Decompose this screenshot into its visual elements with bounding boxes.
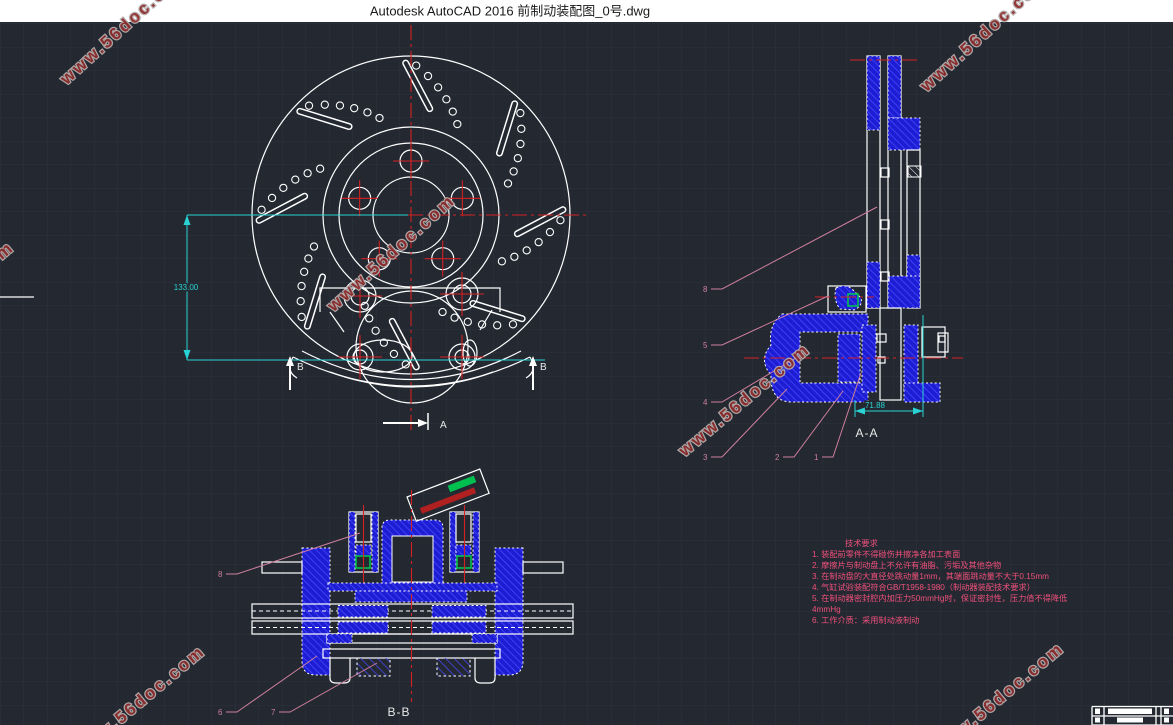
marker-b-right-label: B bbox=[540, 362, 547, 373]
callout-1: 1 bbox=[814, 453, 819, 462]
section-bb-label: B-B bbox=[387, 705, 410, 719]
callout-6: 6 bbox=[218, 708, 223, 717]
tech-note-6: 6. 工作介质：采用制动液制动 bbox=[812, 615, 919, 625]
title-block-table bbox=[1092, 707, 1173, 725]
tech-note-5b: 4mmHg bbox=[812, 605, 841, 614]
tech-note-5: 5. 在制动器密封腔内加压力50mmHg时，保证密封性，压力值不得降低 bbox=[812, 593, 1067, 603]
callout-5: 5 bbox=[703, 341, 708, 350]
dim-71-value: 71.88 bbox=[865, 401, 886, 410]
section-aa-label: A-A bbox=[855, 426, 878, 440]
window-title: Autodesk AutoCAD 2016 前制动装配图_0号.dwg bbox=[370, 4, 650, 19]
tech-notes-title: 技术要求 bbox=[845, 538, 878, 548]
tech-note-1: 1. 装配前零件不得碰伤并擦净各加工表面 bbox=[812, 549, 960, 559]
drawing-canvas[interactable]: 133.00 B B A bbox=[0, 0, 1173, 725]
tech-note-2: 2. 摩擦片与制动盘上不允许有油脂、污垢及其他杂物 bbox=[812, 560, 1001, 570]
callout-4: 4 bbox=[703, 398, 708, 407]
tech-note-4: 4. 气缸试验装配符合GB/T1958-1980（制动器装配技术要求） bbox=[812, 582, 1035, 592]
callout-7: 7 bbox=[271, 708, 276, 717]
callout-8b: 8 bbox=[218, 570, 223, 579]
marker-b-left-label: B bbox=[297, 362, 304, 373]
marker-a-label: A bbox=[440, 420, 447, 431]
dim-133-value: 133.00 bbox=[174, 283, 199, 292]
callout-2: 2 bbox=[775, 453, 780, 462]
callout-8: 8 bbox=[703, 285, 708, 294]
callout-3: 3 bbox=[703, 453, 708, 462]
grid-overlay bbox=[0, 22, 1173, 725]
tech-note-3: 3. 在制动盘的大直径处跳动量1mm，其端面跳动量不大于0.15mm bbox=[812, 571, 1049, 581]
